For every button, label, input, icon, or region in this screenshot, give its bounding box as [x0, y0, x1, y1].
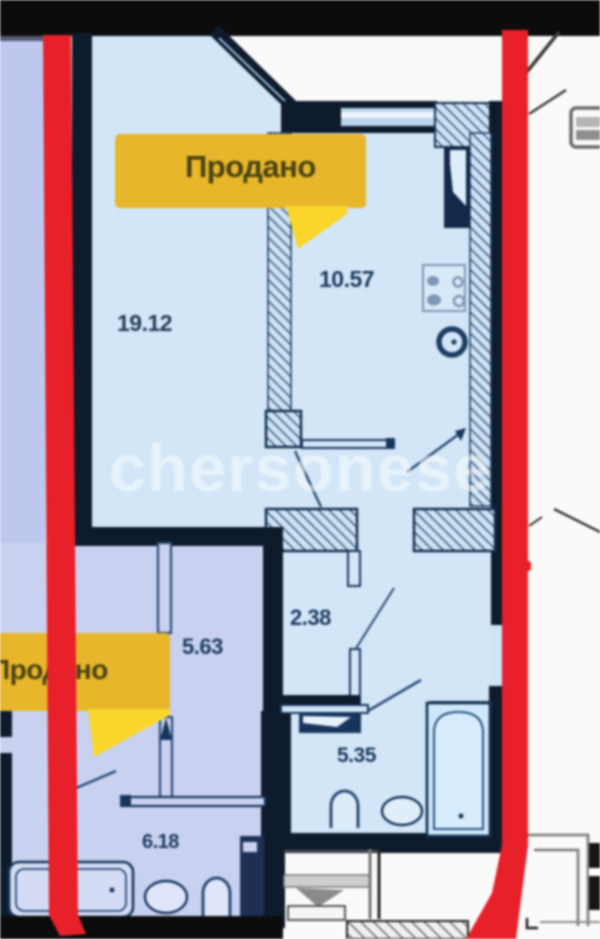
svg-text:19.12: 19.12 — [117, 310, 172, 336]
svg-text:6.18: 6.18 — [142, 831, 179, 853]
svg-text:Продано: Продано — [185, 149, 316, 184]
svg-text:chersonese: chersonese — [109, 431, 492, 505]
svg-text:5.63: 5.63 — [182, 634, 223, 659]
svg-text:5.35: 5.35 — [337, 744, 377, 767]
svg-text:2.38: 2.38 — [290, 605, 331, 630]
svg-text:10.57: 10.57 — [319, 266, 374, 292]
